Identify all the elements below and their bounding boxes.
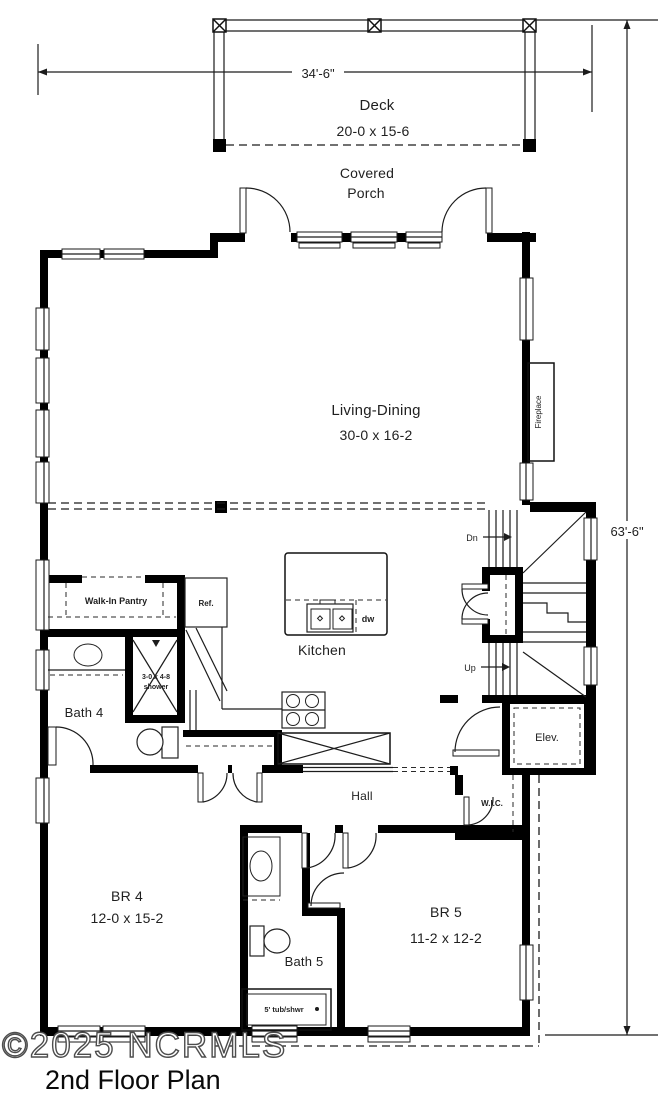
- living-dining-label: Living-Dining: [331, 402, 420, 419]
- shower-label-1: 3-0 x 4-8: [142, 674, 170, 681]
- bath4-label: Bath 4: [65, 705, 104, 720]
- bath4-sink: [74, 644, 102, 666]
- bath5-fixtures: [242, 837, 331, 1030]
- stairs-down-label: Dn: [466, 533, 478, 543]
- wall-openings: [455, 766, 502, 825]
- covered-porch-label-2: Porch: [347, 185, 385, 201]
- br4-size: 12-0 x 15-2: [90, 910, 163, 926]
- refrigerator-label: Ref.: [198, 599, 213, 608]
- br4-label: BR 4: [111, 888, 143, 904]
- shower-label-2: shower: [144, 684, 169, 691]
- bath5-vanity: [243, 837, 280, 896]
- floor-plan-page: 34'-6" 63'-6" Deck 20-0 x 15-6 Covered P…: [0, 0, 666, 1098]
- br5-size: 11-2 x 12-2: [410, 930, 482, 946]
- crossed-cabinet: [278, 733, 390, 764]
- bath5-label: Bath 5: [285, 954, 324, 969]
- bath5-toilet: [250, 926, 290, 956]
- kitchen-label: Kitchen: [298, 642, 346, 658]
- page-title: 2nd Floor Plan: [45, 1065, 221, 1095]
- bath5-sink: [250, 851, 272, 881]
- deck-size: 20-0 x 15-6: [336, 123, 409, 139]
- elevator-label: Elev.: [535, 732, 559, 744]
- stairs: [481, 510, 586, 697]
- hall-label: Hall: [351, 789, 372, 803]
- watermark: ©2025 NCRMLS: [2, 1026, 287, 1065]
- doors: [48, 188, 500, 908]
- dim-height-label: 63'-6": [610, 524, 644, 539]
- fireplace-label: Fireplace: [534, 395, 543, 428]
- living-dining-size: 30-0 x 16-2: [339, 427, 412, 443]
- walk-in-pantry-label: Walk-In Pantry: [85, 596, 147, 606]
- stairs-up-label: Up: [464, 663, 476, 673]
- dim-width-label: 34'-6": [301, 66, 335, 81]
- dishwasher-label: dw: [362, 614, 375, 624]
- covered-porch-label-1: Covered: [340, 165, 394, 181]
- br5-label: BR 5: [430, 904, 462, 920]
- cooktop: [282, 692, 325, 728]
- wic-label: W.I.C.: [481, 799, 503, 808]
- bath4-toilet: [137, 727, 178, 758]
- deck-label: Deck: [360, 97, 395, 114]
- floor-plan-drawing: 34'-6" 63'-6" Deck 20-0 x 15-6 Covered P…: [0, 0, 666, 1098]
- bath4-fixtures: [48, 640, 178, 758]
- tub-label: 5' tub/shwr: [264, 1005, 303, 1014]
